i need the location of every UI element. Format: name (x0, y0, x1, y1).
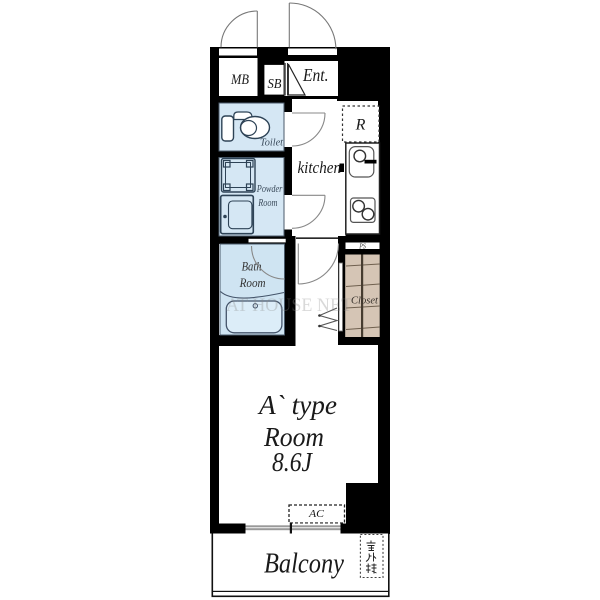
svg-text:AT HOUSE NET: AT HOUSE NET (226, 295, 352, 316)
svg-text:PS: PS (358, 242, 366, 250)
svg-text:Room: Room (257, 197, 277, 209)
svg-text:Powder: Powder (256, 183, 283, 195)
svg-text:Toilet: Toilet (260, 137, 284, 149)
svg-text:AC: AC (308, 508, 325, 520)
svg-text:A` type: A` type (257, 390, 337, 420)
svg-text:MB: MB (230, 72, 249, 88)
svg-text:Closet: Closet (351, 295, 379, 307)
svg-text:Room: Room (239, 275, 266, 290)
svg-text:SB: SB (268, 77, 282, 92)
svg-text:Balcony: Balcony (264, 548, 344, 580)
svg-text:8.6J: 8.6J (272, 447, 314, 477)
svg-text:kitchen: kitchen (298, 158, 342, 177)
svg-text:R: R (355, 117, 366, 134)
svg-text:Ent.: Ent. (302, 65, 328, 85)
